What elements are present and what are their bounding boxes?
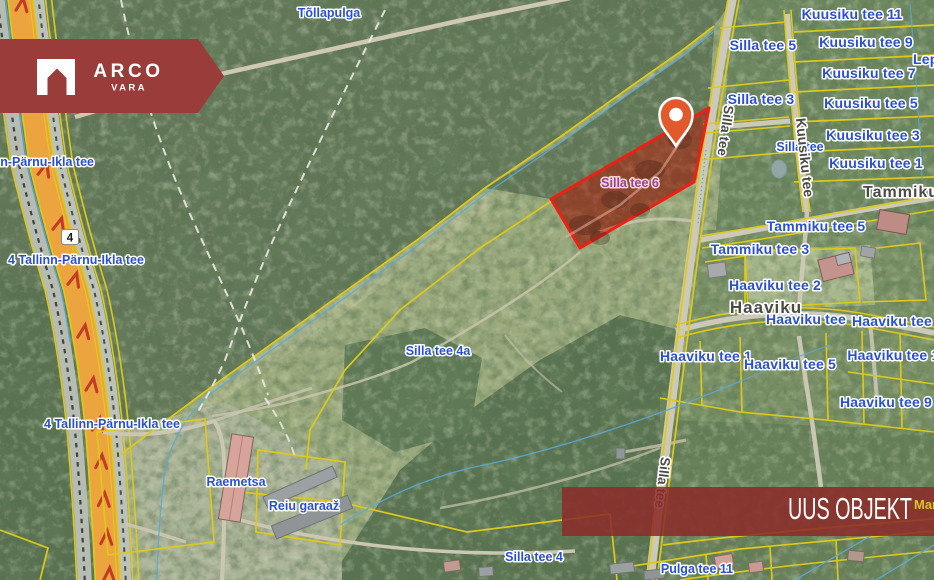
svg-text:Tõllapulga: Tõllapulga xyxy=(298,6,362,20)
svg-text:Silla tee 3: Silla tee 3 xyxy=(728,91,795,107)
svg-text:Kuusiku tee 7: Kuusiku tee 7 xyxy=(822,65,916,81)
svg-text:VARA: VARA xyxy=(111,83,147,94)
svg-text:Lepi: Lepi xyxy=(913,51,934,67)
svg-text:Silla tee 6: Silla tee 6 xyxy=(601,176,659,190)
svg-text:Kuusiku tee 1: Kuusiku tee 1 xyxy=(829,155,923,171)
svg-text:4 Tallinn-Pärnu-Ikla tee: 4 Tallinn-Pärnu-Ikla tee xyxy=(44,417,180,431)
svg-text:Haaviku tee 5: Haaviku tee 5 xyxy=(744,356,836,372)
svg-text:Silla tee 5: Silla tee 5 xyxy=(730,37,797,53)
svg-text:Haaviku tee 11: Haaviku tee 11 xyxy=(847,347,934,363)
svg-text:Haaviku tee 9: Haaviku tee 9 xyxy=(840,394,932,410)
svg-text:ARCO: ARCO xyxy=(93,61,163,82)
svg-text:4 Tallinn-Pärnu-Ikla tee: 4 Tallinn-Pärnu-Ikla tee xyxy=(8,253,144,267)
svg-text:Kuusiku tee 9: Kuusiku tee 9 xyxy=(819,34,913,50)
svg-text:Silla tee 4a: Silla tee 4a xyxy=(406,344,472,358)
svg-text:Tammiku tee 5: Tammiku tee 5 xyxy=(767,218,866,234)
svg-text:Haaviku tee 1: Haaviku tee 1 xyxy=(852,313,934,329)
svg-text:Haaviku tee 2: Haaviku tee 2 xyxy=(729,277,821,293)
svg-text:Margi: Margi xyxy=(914,497,934,512)
svg-text:Reiu garaaž: Reiu garaaž xyxy=(269,499,339,513)
svg-text:Tammiku: Tammiku xyxy=(863,184,934,201)
svg-text:4 Tallinn-Pärnu-Ikla tee: 4 Tallinn-Pärnu-Ikla tee xyxy=(0,155,94,169)
svg-text:Silla tee 4: Silla tee 4 xyxy=(505,550,563,564)
svg-text:Kuusiku tee 11: Kuusiku tee 11 xyxy=(802,6,903,22)
svg-text:Haaviku tee: Haaviku tee xyxy=(766,311,846,327)
svg-text:UUS OBJEKT: UUS OBJEKT xyxy=(788,491,912,526)
svg-text:Kuusiku tee 5: Kuusiku tee 5 xyxy=(824,95,918,111)
svg-text:Pulga tee 11: Pulga tee 11 xyxy=(661,562,733,576)
svg-text:Haaviku tee 1: Haaviku tee 1 xyxy=(660,348,752,364)
svg-text:Raemetsa: Raemetsa xyxy=(206,475,266,489)
svg-text:Kuusiku tee 3: Kuusiku tee 3 xyxy=(826,127,920,143)
svg-text:Tammiku tee 3: Tammiku tee 3 xyxy=(711,241,810,257)
svg-text:4: 4 xyxy=(67,233,74,245)
